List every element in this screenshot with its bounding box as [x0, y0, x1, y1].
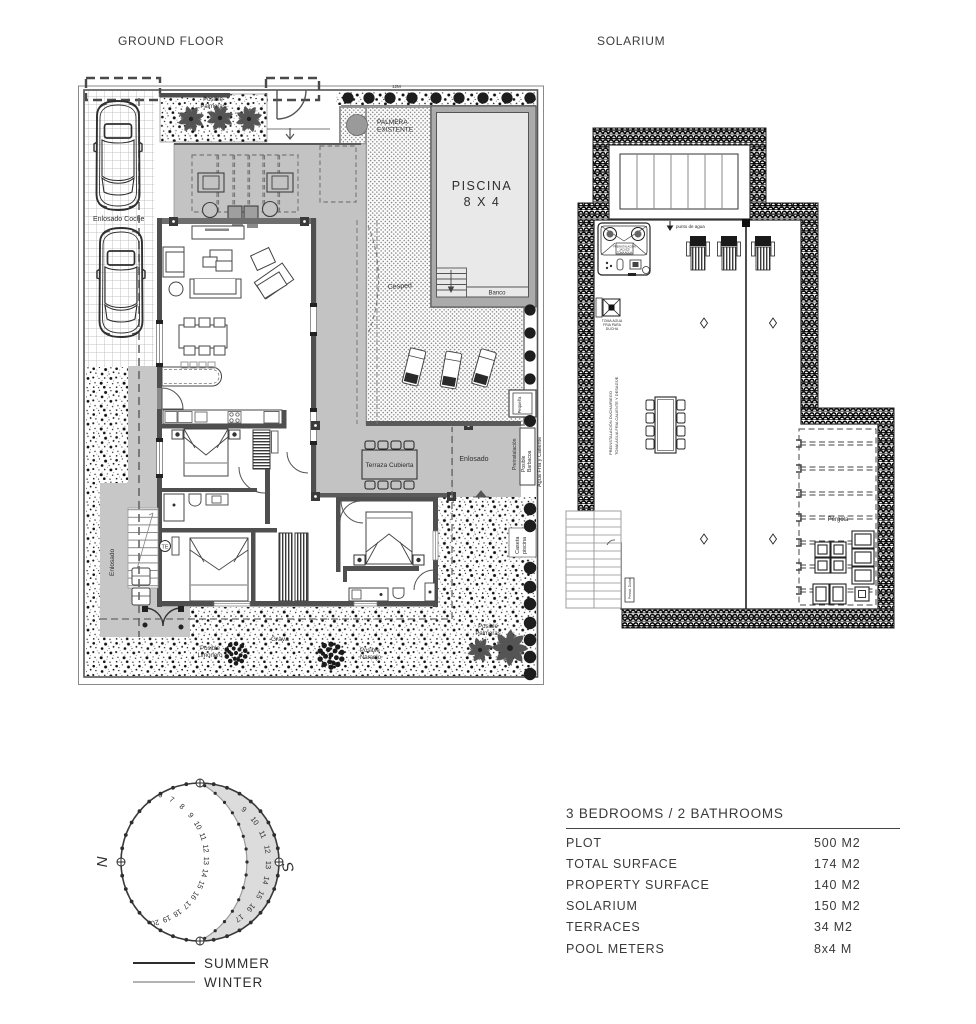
svg-text:12: 12	[262, 844, 272, 854]
svg-text:11: 11	[197, 831, 208, 841]
svg-text:Grava: Grava	[271, 636, 289, 643]
svg-text:PALMERA: PALMERA	[377, 119, 408, 126]
svg-text:Preinst. Ducha: Preinst. Ducha	[628, 578, 632, 599]
svg-text:6: 6	[157, 790, 164, 800]
svg-text:PISCINA: PISCINA	[452, 179, 513, 193]
svg-text:Enlosado: Enlosado	[459, 456, 488, 463]
svg-text:14: 14	[199, 868, 210, 878]
svg-text:9: 9	[186, 811, 196, 820]
svg-text:8: 8	[178, 802, 187, 812]
svg-text:Posible: Posible	[203, 97, 223, 103]
svg-text:WINTER: WINTER	[204, 975, 263, 990]
svg-text:DUCHA: DUCHA	[606, 327, 619, 331]
svg-text:Posible: Posible	[200, 646, 220, 652]
svg-text:Posible: Posible	[360, 648, 380, 654]
svg-text:Terraza Cubierta: Terraza Cubierta	[365, 462, 413, 469]
svg-text:SUMMER: SUMMER	[204, 956, 270, 971]
svg-text:19: 19	[161, 913, 172, 925]
svg-text:Enlosado Coche: Enlosado Coche	[93, 216, 144, 223]
svg-text:18: 18	[172, 907, 184, 919]
svg-text:12: 12	[201, 844, 211, 854]
svg-text:16: 16	[189, 890, 201, 902]
svg-text:10: 10	[192, 820, 204, 832]
svg-text:PREINSTALACIÓN DUCHA/RIEGO: PREINSTALACIÓN DUCHA/RIEGO	[608, 391, 613, 455]
svg-text:Palmeras: Palmeras	[475, 631, 500, 637]
svg-text:20: 20	[150, 918, 160, 929]
svg-text:12M: 12M	[392, 84, 401, 89]
svg-text:Barbacoa: Barbacoa	[527, 450, 533, 472]
svg-text:TOMA AGUA: TOMA AGUA	[617, 251, 632, 255]
svg-text:N: N	[94, 856, 111, 867]
svg-text:13: 13	[264, 861, 273, 870]
svg-text:Preinstalación: Preinstalación	[512, 438, 518, 470]
svg-text:TE: TE	[161, 545, 168, 551]
svg-text:17: 17	[181, 899, 193, 911]
svg-text:TOMA AGUA FRIA CALIENTE Y DESA: TOMA AGUA FRIA CALIENTE Y DESAGÜE	[614, 376, 619, 455]
svg-text:7: 7	[168, 795, 176, 805]
svg-text:Pequeña: Pequeña	[517, 396, 522, 413]
svg-text:15: 15	[195, 879, 207, 890]
svg-text:Posible: Posible	[478, 624, 498, 630]
svg-text:punto de agua: punto de agua	[676, 224, 705, 229]
svg-text:Naranjo: Naranjo	[360, 655, 382, 661]
svg-text:Limonero: Limonero	[197, 653, 223, 659]
svg-text:Pérgola: Pérgola	[828, 517, 849, 523]
svg-text:Enlosado: Enlosado	[109, 549, 116, 576]
svg-text:Caseta: Caseta	[515, 536, 521, 554]
svg-text:EXISTENTE: EXISTENTE	[377, 127, 414, 134]
svg-text:Palmeras: Palmeras	[200, 104, 225, 110]
svg-text:13: 13	[202, 857, 211, 866]
svg-text:Banco: Banco	[488, 291, 506, 297]
svg-text:8 X 4: 8 X 4	[464, 195, 501, 209]
svg-text:Agua Fría y Caliente: Agua Fría y Caliente	[537, 437, 543, 487]
svg-text:piscina: piscina	[522, 536, 528, 554]
